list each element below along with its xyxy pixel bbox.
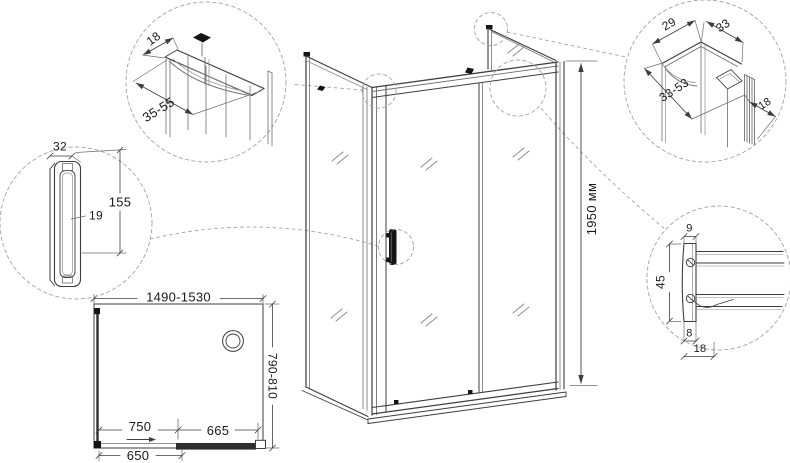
rail-lines xyxy=(696,252,784,310)
plan-opening-dimension: 650 xyxy=(96,448,185,463)
detail-corner-profile: 29 33 33-53 18 xyxy=(624,0,786,162)
tr-adjust-dimension: 33-53 xyxy=(645,64,744,120)
handle-drawing xyxy=(50,162,81,287)
technical-drawing-shower-enclosure: 1950 мм 1490-1530 xyxy=(0,0,790,463)
door-handle xyxy=(387,229,397,265)
plan-depth-dimension: 790-810 xyxy=(265,301,280,451)
rail-top-dimension: 9 xyxy=(681,223,699,244)
adjustment-screws xyxy=(686,258,733,307)
side-glass-plan xyxy=(96,310,98,442)
iso-height-label: 1950 мм xyxy=(584,183,599,236)
rail-total-label: 18 xyxy=(694,343,707,355)
plan-width-label: 1490-1530 xyxy=(146,290,211,305)
rail-total-dimension: 18 xyxy=(681,342,717,360)
handle-length-dimension: 155 xyxy=(76,147,131,256)
isometric-view: 1950 мм xyxy=(302,13,599,424)
door-roller xyxy=(468,390,473,394)
drain-circle xyxy=(223,331,244,352)
tl-width-dimension: 18 xyxy=(143,29,178,58)
tr-front-label: 29 xyxy=(660,14,679,33)
plan-opening-label: 650 xyxy=(127,448,150,463)
tl-adjust-dimension: 35-55 xyxy=(133,60,261,125)
plan-fixed-dimension: 665 xyxy=(178,423,261,439)
tr-side-dimension: 33 xyxy=(702,16,744,62)
plan-width-dimension: 1490-1530 xyxy=(91,290,266,305)
rail-bottom-dimension: 8 xyxy=(681,322,699,344)
corner-post-plan xyxy=(256,440,266,448)
handle-gap-label: 19 xyxy=(89,209,103,223)
handle-gap-dimension: 19 xyxy=(71,209,103,223)
wall-strip-lines xyxy=(745,75,755,146)
glass-clamp xyxy=(317,86,326,92)
plan-door-label: 750 xyxy=(129,419,152,434)
height-dimension: 1950 мм xyxy=(566,61,599,386)
door-roller xyxy=(394,400,399,404)
plan-view: 1490-1530 790-810 750 xyxy=(91,290,280,463)
rail-height-label: 45 xyxy=(654,275,668,289)
plan-fixed-label: 665 xyxy=(207,423,230,438)
tr-side-label: 33 xyxy=(713,16,732,35)
handle-length-label: 155 xyxy=(109,195,132,210)
guide-rail-drawing xyxy=(682,244,784,322)
wall-profile-plan xyxy=(94,308,100,314)
wall-profile-plan xyxy=(94,441,101,448)
detail-top-wall-profile: 18 35-55 xyxy=(126,2,286,162)
sliding-door-plan xyxy=(176,443,256,450)
profile-drop-lines xyxy=(166,56,272,146)
detail-handle: 32 155 19 xyxy=(0,140,152,300)
rail-top-label: 9 xyxy=(686,223,692,235)
top-profile-drawing xyxy=(165,33,272,146)
rail-bottom-label: 8 xyxy=(686,328,692,340)
detail-guide-rail: 9 45 8 18 xyxy=(647,206,790,360)
plan-door-dimension: 750 xyxy=(96,419,181,442)
zoom-marker-circles xyxy=(362,13,546,265)
plan-depth-label: 790-810 xyxy=(266,353,280,399)
top-rail-clip xyxy=(465,68,474,75)
slide-direction-arrow xyxy=(127,437,156,442)
tl-adjust-label: 35-55 xyxy=(140,94,177,125)
handle-width-label: 32 xyxy=(53,140,67,154)
profile-cap xyxy=(193,33,211,43)
rail-height-dimension: 45 xyxy=(654,241,682,324)
front-sliding-wall xyxy=(368,62,566,424)
tr-wall-label: 18 xyxy=(756,95,773,112)
